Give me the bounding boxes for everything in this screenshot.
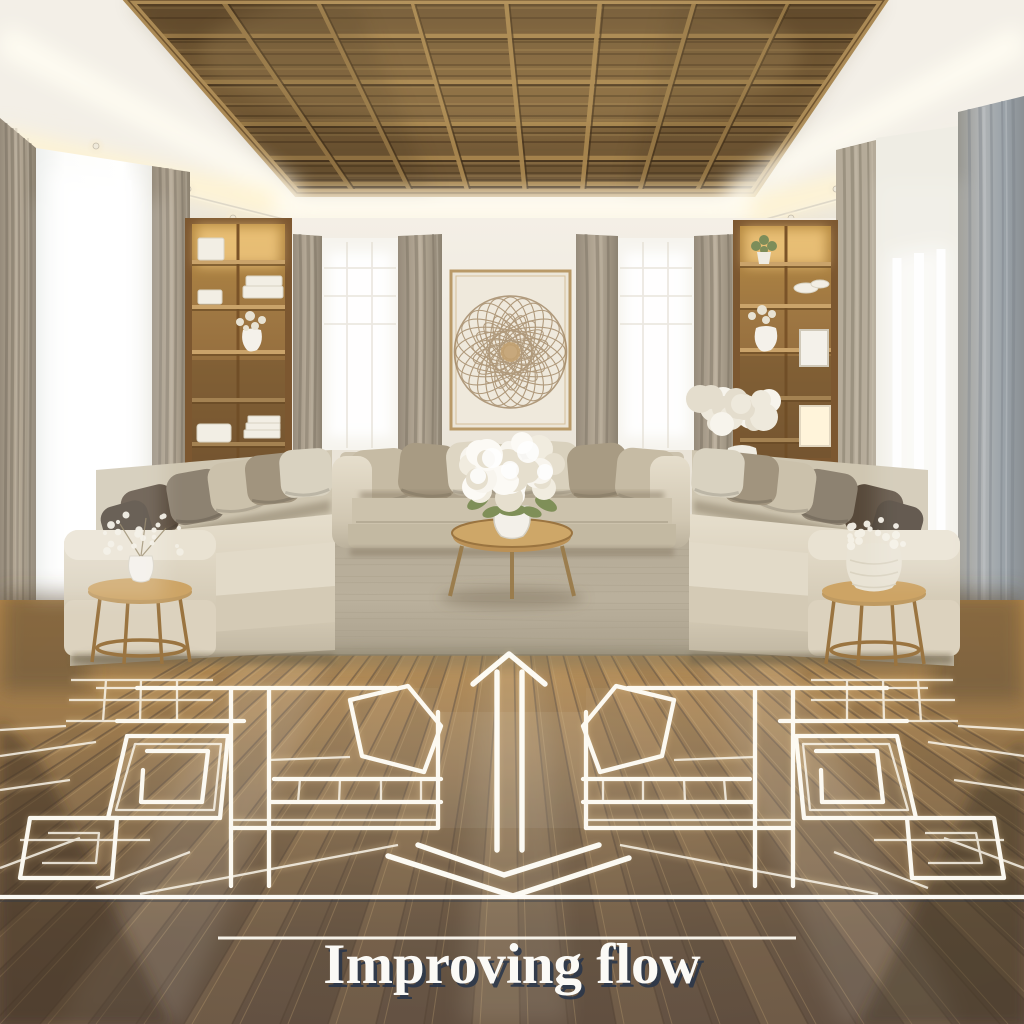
svg-text:Improving flow: Improving flow xyxy=(323,933,700,996)
